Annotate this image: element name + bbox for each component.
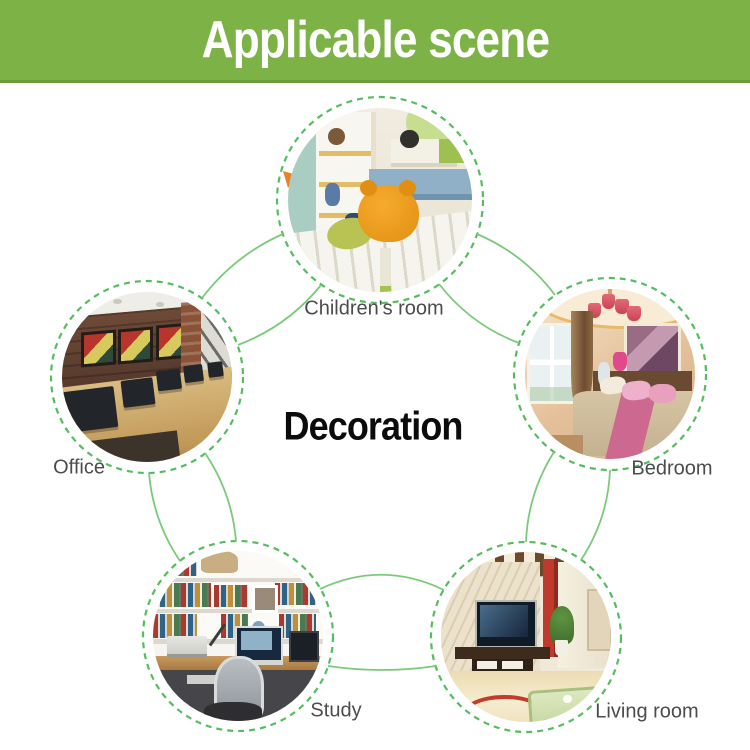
label-office: Office bbox=[53, 457, 105, 480]
photo-bedroom bbox=[525, 289, 695, 459]
photo-study bbox=[153, 551, 323, 721]
photo-living-room bbox=[441, 552, 611, 722]
label-living-room: Living room bbox=[595, 701, 698, 724]
label-childrens-room: Children's room bbox=[304, 298, 443, 321]
center-title: Decoration bbox=[283, 405, 462, 450]
decoration-diagram: Children's room Office Bedroom Study Liv… bbox=[0, 80, 750, 750]
label-study: Study bbox=[310, 700, 361, 723]
label-bedroom: Bedroom bbox=[631, 458, 712, 481]
photo-childrens-room bbox=[288, 108, 472, 292]
photo-office bbox=[62, 292, 232, 462]
